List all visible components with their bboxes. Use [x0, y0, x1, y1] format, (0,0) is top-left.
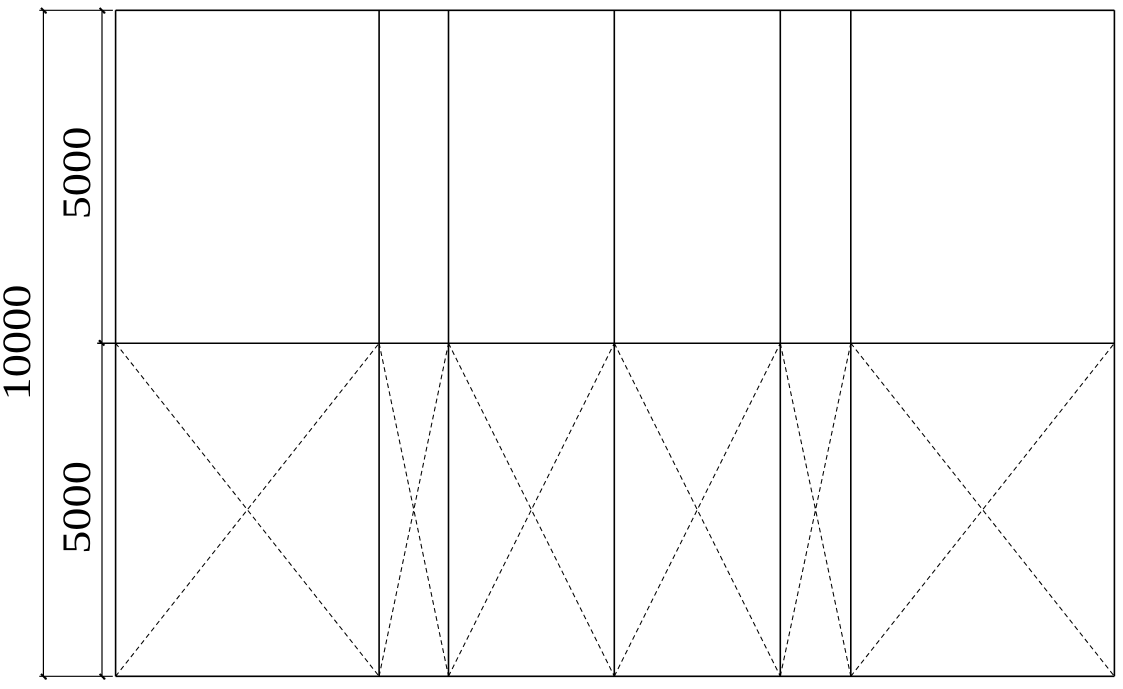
- svg-text:5000: 5000: [55, 127, 99, 220]
- svg-text:10000: 10000: [0, 285, 39, 401]
- svg-text:5000: 5000: [55, 461, 99, 554]
